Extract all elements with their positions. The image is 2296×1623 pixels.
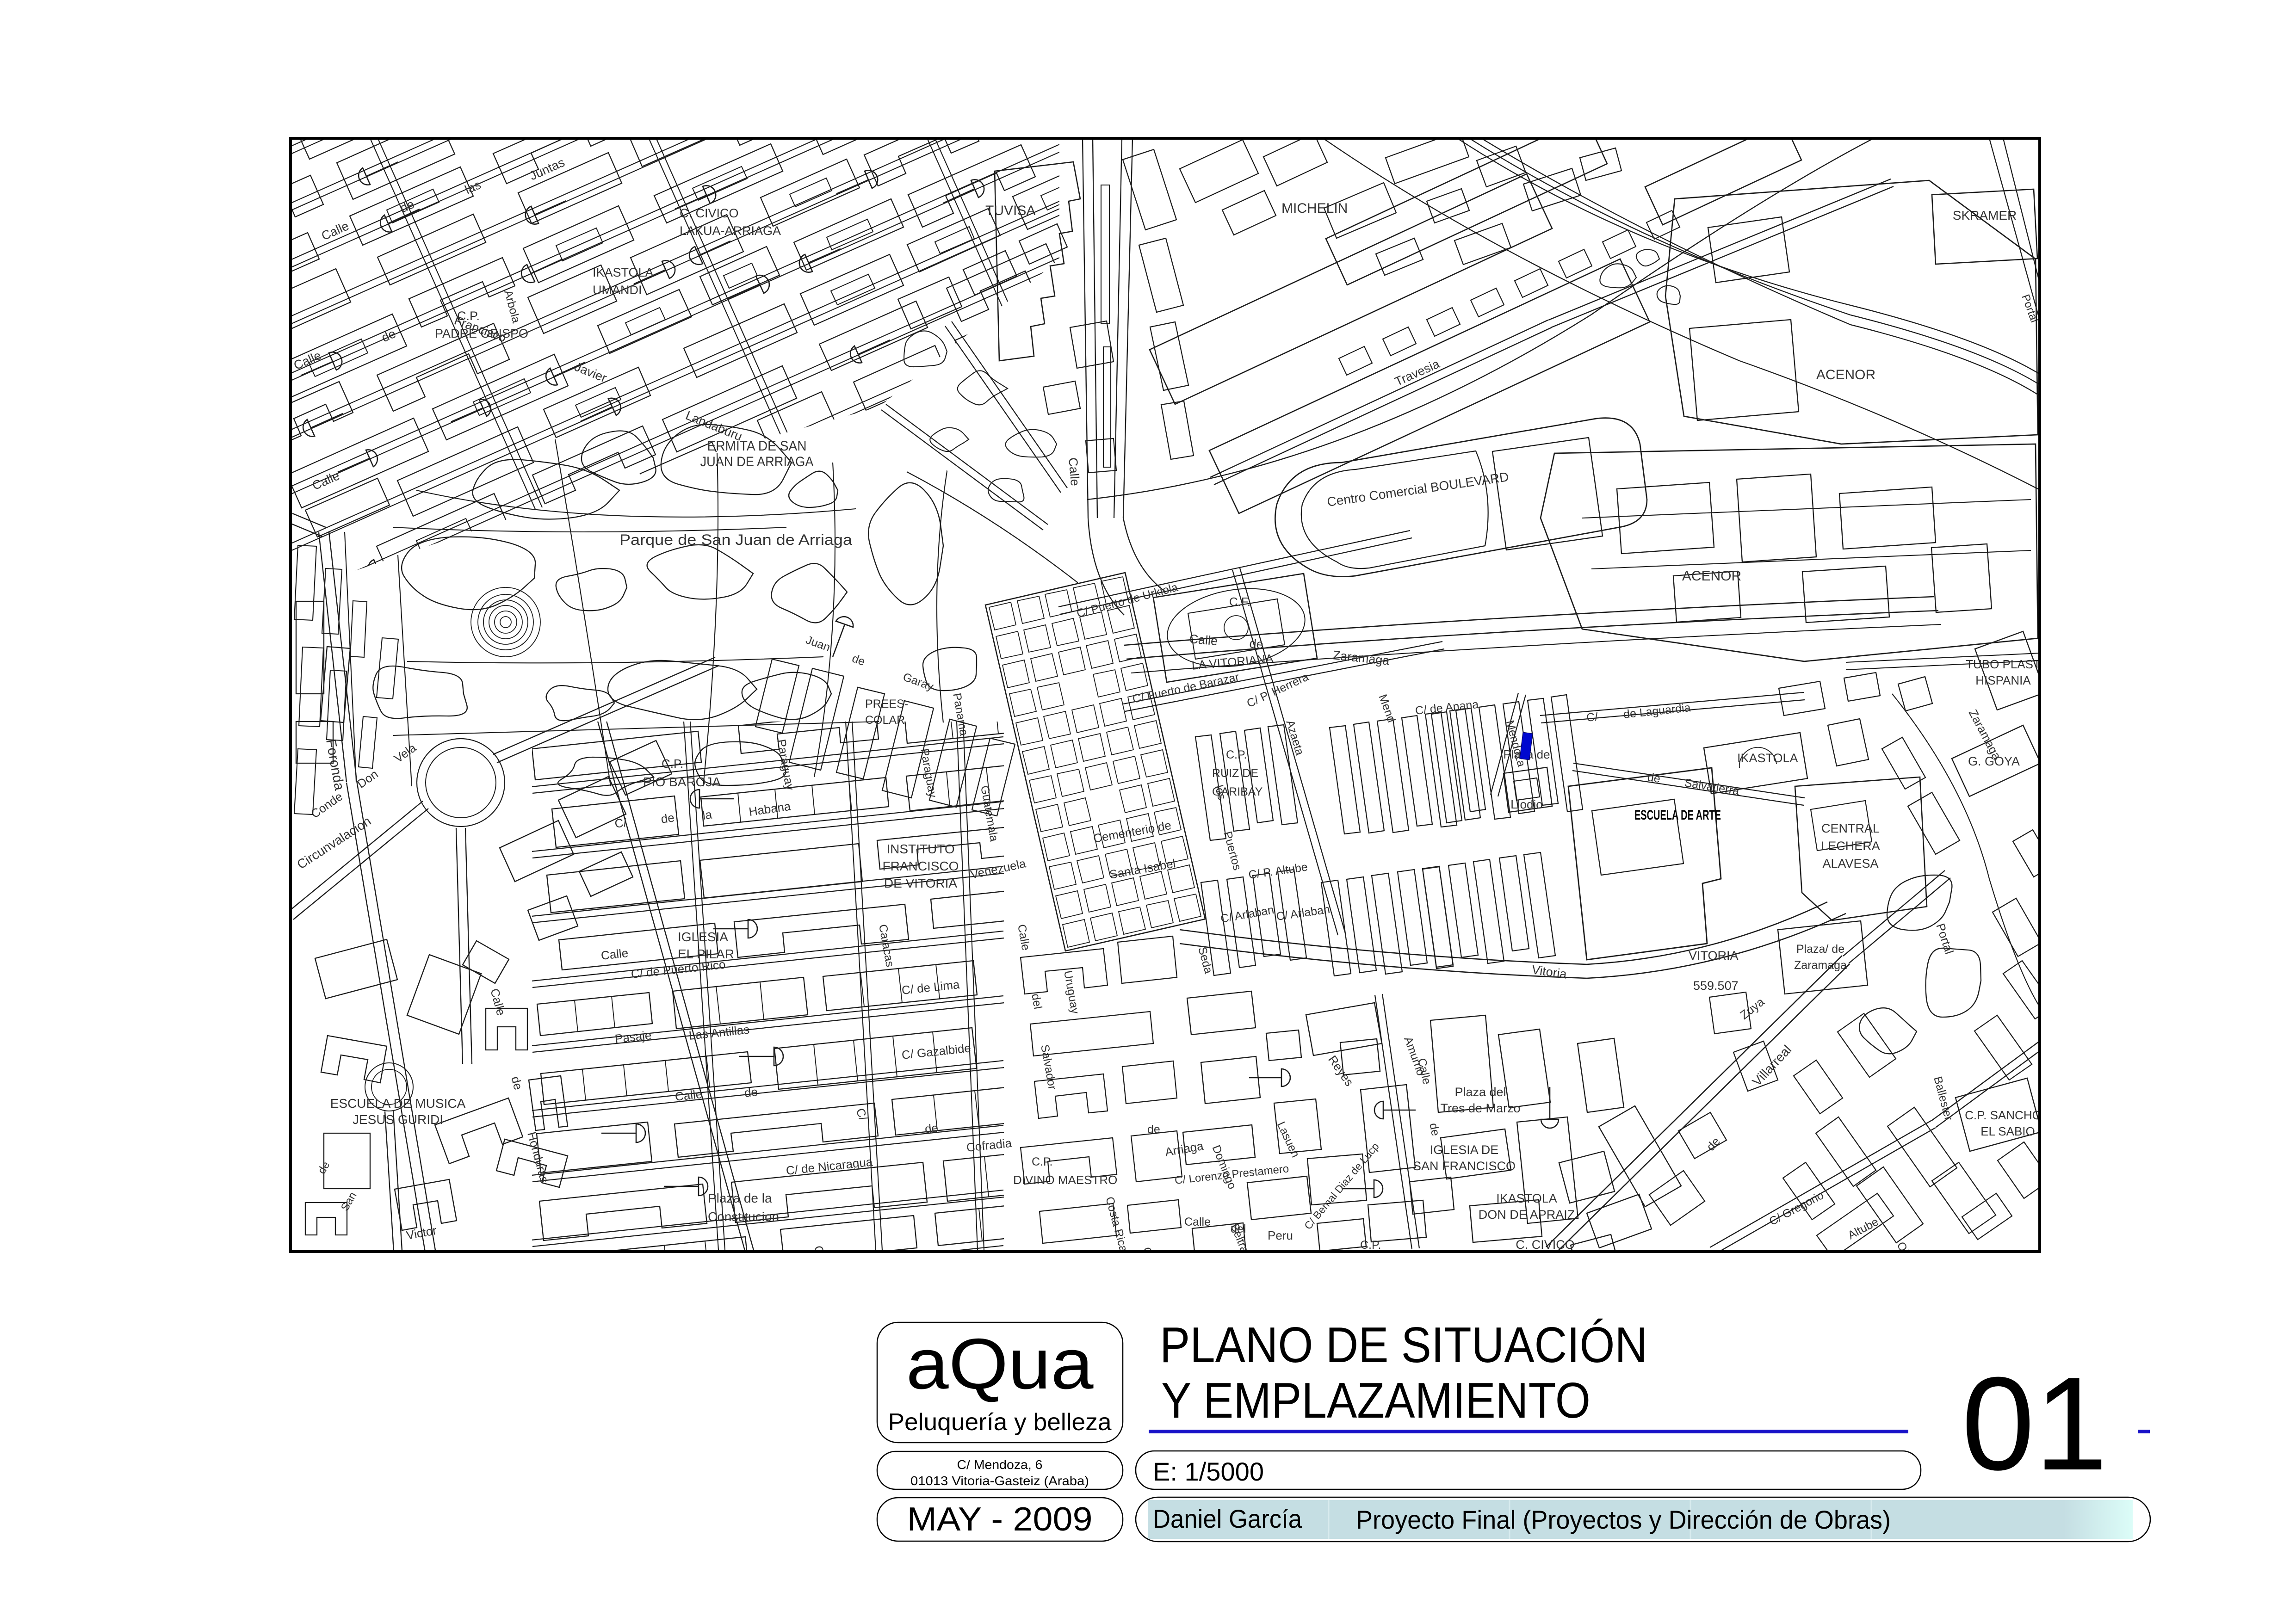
svg-text:MICHELIN: MICHELIN — [1281, 201, 1348, 216]
svg-text:LAKUA-ARRIAGA: LAKUA-ARRIAGA — [680, 224, 781, 238]
svg-text:Calle: Calle — [600, 946, 629, 963]
svg-text:de: de — [1147, 1123, 1160, 1136]
svg-text:VITORIA: VITORIA — [1689, 949, 1739, 963]
svg-text:PLANO DE SITUACIÓN: PLANO DE SITUACIÓN — [1160, 1317, 1647, 1373]
svg-text:Plaza/ de: Plaza/ de — [1796, 943, 1844, 956]
svg-text:C.F.: C.F. — [1229, 595, 1250, 609]
svg-text:PIO BAROJA: PIO BAROJA — [643, 775, 721, 789]
svg-text:JESUS GURIDI: JESUS GURIDI — [353, 1112, 443, 1127]
svg-text:TUVISA: TUVISA — [985, 203, 1035, 218]
svg-text:Parque de San Juan de Arriaga: Parque de San Juan de Arriaga — [619, 531, 852, 548]
svg-text:Constitucion: Constitucion — [708, 1210, 779, 1224]
svg-text:JUAN DE ARRIAGA: JUAN DE ARRIAGA — [700, 454, 814, 469]
svg-text:Calle: Calle — [1184, 1216, 1211, 1228]
svg-text:CENTRAL: CENTRAL — [1821, 821, 1880, 835]
svg-text:Proyecto Final (Proyectos y Di: Proyecto Final (Proyectos y Dirección de… — [1356, 1505, 1891, 1534]
svg-text:GARIBAY: GARIBAY — [1212, 785, 1263, 798]
svg-text:Daniel García: Daniel García — [1153, 1504, 1302, 1533]
svg-text:ACENOR: ACENOR — [1816, 367, 1875, 383]
svg-text:Llodio: Llodio — [1510, 797, 1542, 811]
svg-text:C. CIVICO: C. CIVICO — [680, 206, 739, 220]
svg-text:DIVINO MAESTRO: DIVINO MAESTRO — [1013, 1173, 1117, 1187]
svg-text:C/: C/ — [614, 815, 628, 831]
svg-text:de: de — [1646, 771, 1661, 785]
svg-text:Zaramaga: Zaramaga — [1794, 959, 1847, 972]
svg-text:DE VITORIA: DE VITORIA — [884, 876, 958, 890]
svg-text:IKASTOLA: IKASTOLA — [1737, 751, 1798, 765]
svg-text:PREES-: PREES- — [865, 697, 908, 710]
svg-text:IKASTOLA: IKASTOLA — [593, 265, 654, 279]
svg-text:Calle: Calle — [1188, 632, 1218, 648]
svg-text:Peru: Peru — [1268, 1228, 1293, 1242]
svg-text:de: de — [743, 1085, 758, 1100]
svg-text:IKASTOLA: IKASTOLA — [1496, 1191, 1557, 1205]
svg-text:del: del — [1029, 993, 1044, 1010]
svg-text:FRANCISCO: FRANCISCO — [883, 859, 959, 873]
svg-text:01013 Vitoria-Gasteiz (Araba): 01013 Vitoria-Gasteiz (Araba) — [910, 1474, 1089, 1488]
svg-text:SKRAMER: SKRAMER — [1953, 208, 2017, 222]
svg-text:559.507: 559.507 — [1693, 979, 1739, 993]
svg-text:ACENOR: ACENOR — [1682, 568, 1741, 584]
svg-text:de: de — [1427, 1122, 1442, 1137]
svg-text:SAN FRANCISCO: SAN FRANCISCO — [1413, 1159, 1516, 1173]
svg-text:E: 1/5000: E: 1/5000 — [1153, 1457, 1264, 1486]
svg-text:de: de — [660, 810, 675, 826]
svg-text:IGLESIA DE: IGLESIA DE — [1430, 1143, 1499, 1157]
svg-text:Plaza del: Plaza del — [1454, 1085, 1506, 1099]
svg-text:ESCUELA DE ARTE: ESCUELA DE ARTE — [1634, 808, 1721, 823]
svg-text:RUIZ DE: RUIZ DE — [1212, 767, 1258, 780]
svg-text:ESCUELA DE MUSICA: ESCUELA DE MUSICA — [330, 1096, 466, 1111]
svg-text:C. CIVICO: C. CIVICO — [1516, 1238, 1575, 1252]
svg-text:de: de — [924, 1121, 939, 1136]
svg-text:Calle: Calle — [674, 1087, 703, 1104]
svg-text:EL SABIO: EL SABIO — [1980, 1124, 2035, 1138]
svg-text:01: 01 — [1962, 1349, 2108, 1498]
svg-text:C.P.: C.P. — [1360, 1239, 1381, 1252]
svg-text:de: de — [1249, 636, 1264, 652]
svg-text:MAY - 2009: MAY - 2009 — [907, 1501, 1093, 1538]
svg-text:IGLESIA: IGLESIA — [678, 930, 728, 944]
svg-text:INSTITUTO: INSTITUTO — [886, 842, 954, 856]
svg-text:HISPANIA: HISPANIA — [1975, 673, 2031, 687]
svg-text:C.P.: C.P. — [1032, 1155, 1052, 1168]
svg-text:Peluquería y belleza: Peluquería y belleza — [888, 1409, 1112, 1436]
svg-text:Calle: Calle — [1066, 457, 1082, 487]
svg-text:C/ Mendoza, 6: C/ Mendoza, 6 — [957, 1457, 1043, 1472]
svg-text:Y EMPLAZAMIENTO: Y EMPLAZAMIENTO — [1161, 1372, 1590, 1429]
svg-text:TUBO PLAST: TUBO PLAST — [1966, 657, 2041, 671]
svg-text:Plaza de la: Plaza de la — [708, 1191, 772, 1205]
svg-text:C.P.: C.P. — [457, 309, 480, 323]
svg-text:ALAVESA: ALAVESA — [1822, 857, 1878, 870]
svg-text:PADRE OBISPO: PADRE OBISPO — [435, 327, 528, 340]
svg-text:C.P.: C.P. — [1226, 748, 1247, 761]
svg-text:aQua: aQua — [906, 1324, 1094, 1404]
svg-text:ERMITA DE SAN: ERMITA DE SAN — [707, 438, 807, 454]
svg-text:C/: C/ — [1586, 710, 1599, 724]
svg-text:EL PILAR: EL PILAR — [678, 947, 734, 961]
svg-text:LECHERA: LECHERA — [1821, 839, 1880, 853]
svg-text:UMANDI: UMANDI — [593, 283, 642, 297]
svg-text:DON DE APRAIZ: DON DE APRAIZ — [1479, 1208, 1575, 1222]
svg-text:C.P.: C.P. — [662, 757, 683, 771]
svg-text:del: del — [1231, 1222, 1246, 1235]
svg-text:C.P. SANCHO: C.P. SANCHO — [1965, 1108, 2042, 1122]
svg-text:Tres de Marzo: Tres de Marzo — [1440, 1101, 1520, 1115]
